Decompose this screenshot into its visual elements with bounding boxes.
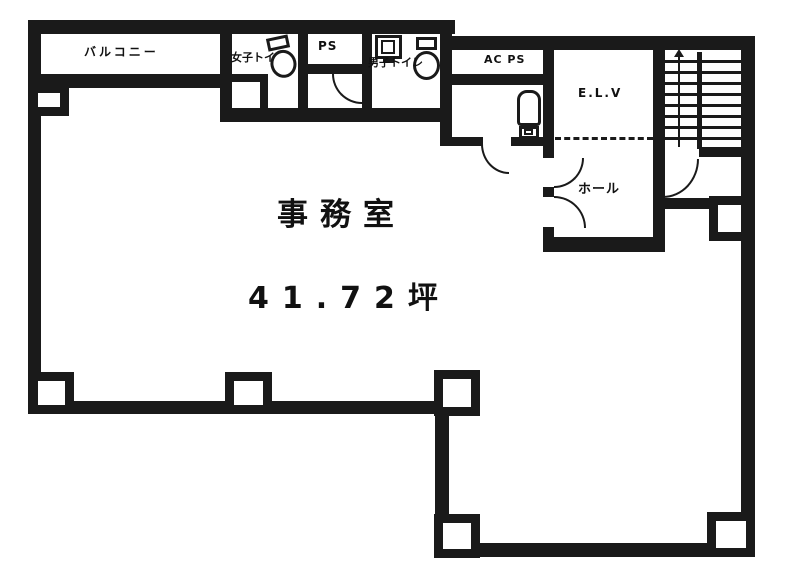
column-right-mid <box>709 196 750 241</box>
wall-right-exterior <box>741 36 755 557</box>
column-lower-left <box>434 514 480 558</box>
office-area-label: 41.72坪 <box>248 284 451 314</box>
toilet-bowl <box>268 47 299 80</box>
column-left-top <box>29 84 69 116</box>
column-left-bottom <box>29 372 74 414</box>
office-room-label: 事務室 <box>277 200 406 231</box>
door-arc-stair-landing <box>663 159 699 198</box>
door-arc-wc-room <box>481 144 509 174</box>
wall-stairs-bottom <box>699 147 752 157</box>
elevator-door-line <box>555 137 653 140</box>
toilet-tank-detail <box>524 129 533 135</box>
wall-womens-closet-right <box>260 74 268 114</box>
column-lower-right <box>707 512 755 557</box>
wall-toilet-block-bottom <box>220 108 452 122</box>
stairs-left-flight <box>665 52 697 147</box>
stairs-direction-line <box>678 56 680 147</box>
column-inner-corner <box>434 370 480 416</box>
wall-hall-left-mid <box>543 187 554 197</box>
column-bottom-mid <box>225 372 272 414</box>
door-arc-hall-lower <box>554 196 586 228</box>
door-arc-ps-compartment <box>332 74 362 104</box>
wc-toilet-icon <box>515 90 543 142</box>
duct-shaft-box <box>445 83 473 133</box>
urinal-basin <box>381 40 395 54</box>
balcony-label: バルコニー <box>84 46 159 58</box>
wall-landing-bottom <box>665 198 712 209</box>
pipe-space-label: PS <box>318 40 337 52</box>
floor-plan: バルコニー 女子トイレ PS 男子トイレ AC PS E.L.V ホール 事務室… <box>0 0 787 585</box>
toilet-tank <box>416 37 437 50</box>
wall-hall-left-upper <box>543 48 554 158</box>
wall-balcony-right <box>220 20 232 122</box>
hall-label: ホール <box>578 183 620 196</box>
wall-ps-mens-divider <box>362 32 372 116</box>
wall-top-left-section <box>28 20 455 34</box>
toilet-tank <box>266 34 290 51</box>
toilet-bowl <box>517 90 541 126</box>
wall-elv-stairs-divider <box>653 48 665 252</box>
ac-pipe-space-label: AC PS <box>484 54 525 65</box>
wall-wc-room-bottom-left <box>443 137 483 146</box>
wall-top-right-section <box>443 36 755 50</box>
wall-hall-bottom <box>543 237 665 252</box>
elevator-label: E.L.V <box>578 87 622 99</box>
mens-toilet-label: 男子トイレ <box>368 57 423 68</box>
wall-ps-bottom <box>302 64 364 74</box>
stairs-right-flight <box>702 52 741 147</box>
stairs-direction-arrow-icon <box>674 49 684 57</box>
